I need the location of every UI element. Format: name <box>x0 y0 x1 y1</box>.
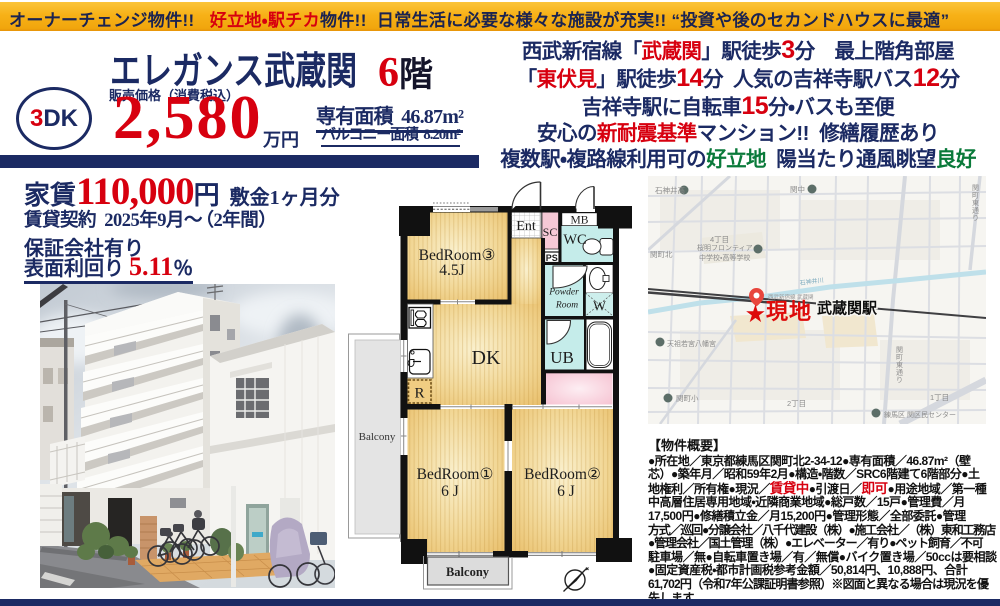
svg-text:武蔵関駅: 武蔵関駅 <box>817 299 878 317</box>
svg-text:Room: Room <box>555 301 578 311</box>
svg-text:練馬区 関区民センター: 練馬区 関区民センター <box>884 410 956 419</box>
svg-text:W: W <box>593 299 606 314</box>
svg-text:MB: MB <box>571 215 589 227</box>
svg-text:PS: PS <box>546 253 558 263</box>
svg-text:BedRoom①: BedRoom① <box>417 466 494 483</box>
svg-text:4.5J: 4.5J <box>439 262 464 279</box>
svg-text:関町東通り: 関町東通り <box>896 346 903 384</box>
svg-text:4丁目: 4丁目 <box>710 235 729 244</box>
svg-text:6 J: 6 J <box>441 483 459 500</box>
svg-text:石神井高: 石神井高 <box>655 185 685 195</box>
svg-text:Ent: Ent <box>516 219 536 234</box>
svg-text:関町北: 関町北 <box>650 250 673 259</box>
svg-text:Balcony: Balcony <box>359 431 396 443</box>
svg-text:Powder: Powder <box>548 288 579 298</box>
svg-text:★: ★ <box>746 303 765 326</box>
svg-text:WC: WC <box>563 232 586 248</box>
svg-text:DK: DK <box>472 347 501 369</box>
svg-text:SC: SC <box>543 225 558 239</box>
svg-text:関町東通り: 関町東通り <box>972 184 979 222</box>
svg-text:西武新宿線 武蔵関: 西武新宿線 武蔵関 <box>768 293 814 301</box>
svg-text:天祖若宮八幡宮: 天祖若宮八幡宮 <box>667 339 716 348</box>
svg-text:R: R <box>414 386 424 402</box>
svg-text:現地: 現地 <box>766 299 812 324</box>
svg-text:6 J: 6 J <box>557 483 575 500</box>
svg-text:UB: UB <box>550 348 574 367</box>
svg-text:2丁目: 2丁目 <box>787 399 806 408</box>
svg-text:関中: 関中 <box>790 184 805 194</box>
svg-text:BedRoom②: BedRoom② <box>524 466 601 483</box>
svg-text:Balcony: Balcony <box>446 565 490 579</box>
svg-text:関町小: 関町小 <box>676 394 699 403</box>
svg-text:1丁目: 1丁目 <box>930 393 949 402</box>
svg-text:桜明フロンティア: 桜明フロンティア <box>697 243 753 252</box>
svg-text:中学校・高等学校: 中学校・高等学校 <box>699 253 750 262</box>
